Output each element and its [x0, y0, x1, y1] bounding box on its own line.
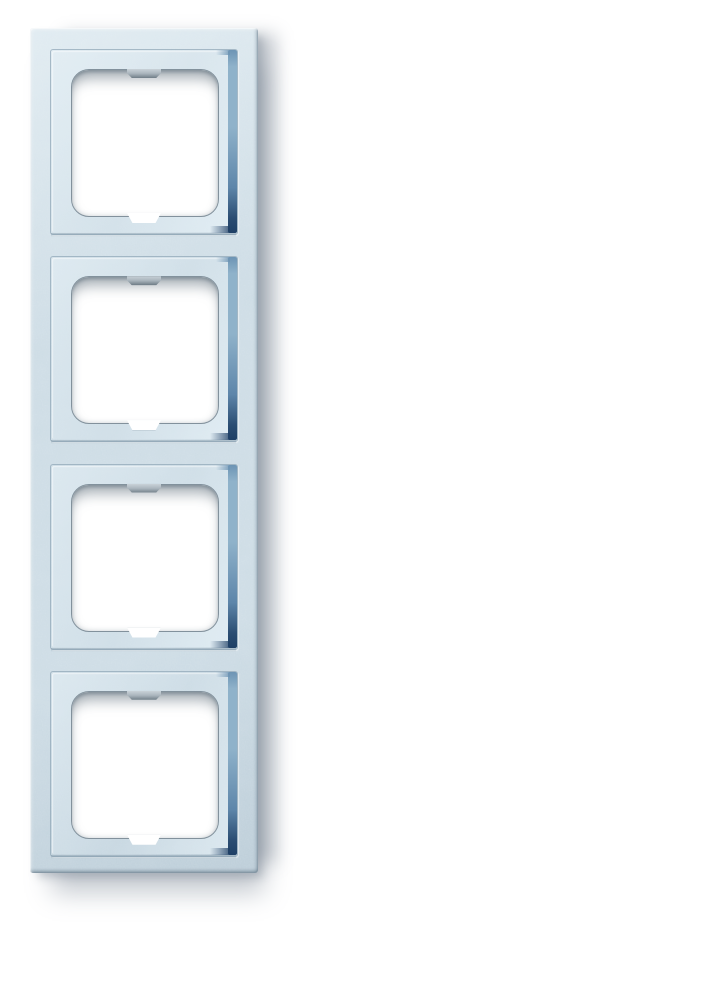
gang-unit-2 — [30, 256, 258, 444]
module-opening-3 — [71, 484, 219, 632]
alignment-tab-top-icon — [127, 691, 161, 700]
groove-bottom-shade — [51, 648, 236, 652]
gang-units — [30, 28, 258, 873]
alignment-notch-bottom-icon — [127, 213, 161, 223]
groove-shadow-bottom-hook — [210, 433, 230, 440]
gang-unit-3 — [30, 464, 258, 652]
alignment-tab-top-icon — [127, 484, 161, 493]
alignment-notch-bottom-icon — [127, 835, 161, 845]
groove-bottom-shade — [51, 233, 236, 237]
module-opening-2 — [71, 276, 219, 424]
switch-frame — [30, 28, 258, 873]
module-opening-1 — [71, 69, 219, 217]
groove-bottom-shade — [51, 440, 236, 444]
groove-shadow-bottom-hook — [210, 848, 230, 855]
groove-shadow-top-hook — [216, 672, 230, 677]
groove-shadow-bottom-hook — [210, 641, 230, 648]
photo-background — [0, 0, 709, 982]
groove-shadow-right — [228, 50, 237, 233]
alignment-tab-top-icon — [127, 276, 161, 285]
groove-shadow-bottom-hook — [210, 226, 230, 233]
groove-shadow-right — [228, 672, 237, 855]
groove-bottom-shade — [51, 855, 236, 859]
alignment-notch-bottom-icon — [127, 420, 161, 430]
module-opening-4 — [71, 691, 219, 839]
alignment-notch-bottom-icon — [127, 628, 161, 638]
groove-shadow-right — [228, 465, 237, 648]
gang-unit-4 — [30, 671, 258, 859]
groove-shadow-top-hook — [216, 465, 230, 470]
gang-unit-1 — [30, 49, 258, 237]
alignment-tab-top-icon — [127, 69, 161, 78]
groove-shadow-top-hook — [216, 50, 230, 55]
groove-shadow-right — [228, 257, 237, 440]
groove-shadow-top-hook — [216, 257, 230, 262]
